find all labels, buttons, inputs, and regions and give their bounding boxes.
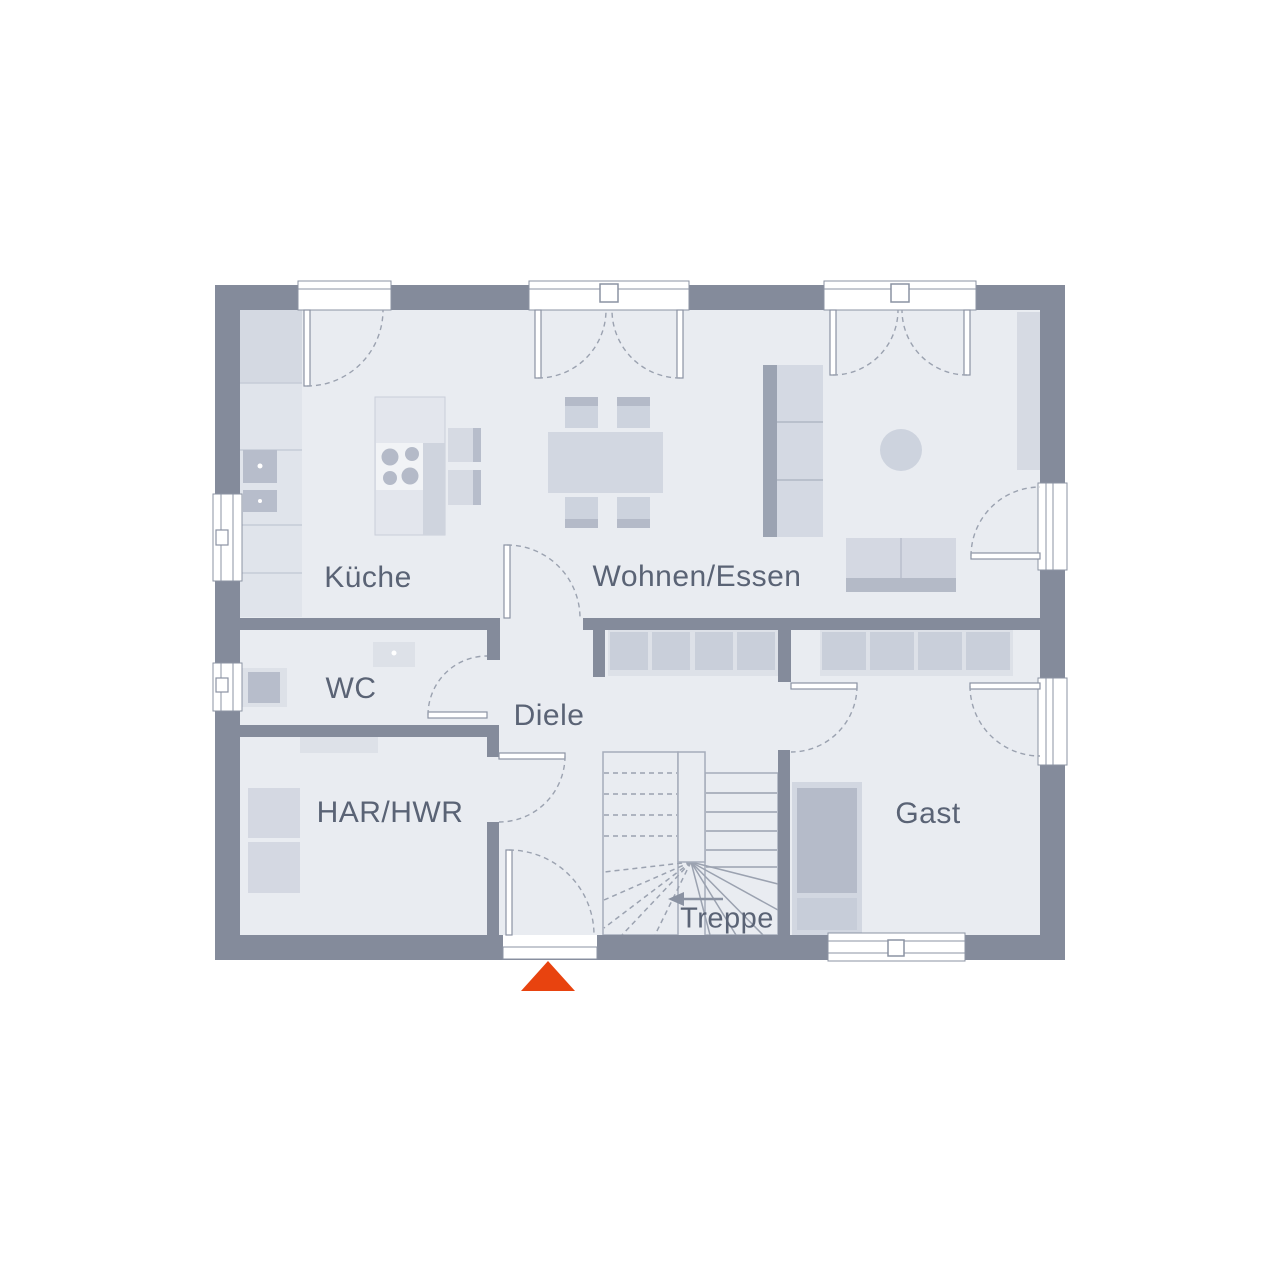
washing-machine — [248, 788, 300, 838]
door-leaf-living-left — [830, 310, 836, 375]
entrance-door-opening — [503, 935, 597, 948]
wc-toilet-seat — [248, 672, 280, 703]
wall-stair-guest — [778, 750, 790, 935]
room-label-gast: Gast — [895, 799, 960, 829]
door-leaf-entrance — [506, 850, 512, 935]
stair-spine — [678, 752, 705, 862]
shelf-unit-back — [763, 365, 777, 537]
door-leaf-guest-window — [970, 683, 1040, 689]
island-stool-back — [473, 428, 481, 462]
kitchen-appliance-knob — [258, 499, 262, 503]
door-leaf-dining-right — [677, 310, 683, 378]
kitchen-sink-drain — [258, 464, 263, 469]
entrance-door-sill — [503, 947, 597, 959]
dryer-machine — [248, 842, 300, 893]
shelf-unit — [777, 365, 823, 537]
room-label-wohnen-essen: Wohnen/Essen — [593, 562, 802, 592]
window-handle-post — [216, 678, 228, 692]
door-leaf-living-window — [971, 553, 1040, 559]
door-leaf-hall-kitchen — [504, 545, 510, 618]
wall-kitchen-wc — [240, 618, 500, 630]
guest-bed-mattress — [797, 788, 857, 893]
dining-table — [548, 432, 663, 493]
sofa-back — [846, 578, 956, 592]
wc-washbasin-drain — [392, 651, 397, 656]
guest-bed-pillow — [797, 898, 857, 930]
room-label-kueche: Küche — [324, 563, 412, 593]
wall-utility-right-lower — [487, 822, 499, 935]
window-mullion-post — [888, 940, 904, 956]
window-handle-post — [216, 530, 228, 545]
wall-stub-wc-entry — [487, 618, 500, 660]
entrance-direction-icon — [521, 961, 575, 991]
dining-chair-back — [617, 519, 650, 528]
door-leaf-living-right — [964, 310, 970, 375]
wall-exterior-left — [215, 285, 240, 960]
door-leaf-dining-left — [535, 310, 541, 378]
dining-chair-back — [617, 397, 650, 406]
window-kitchen-terrace-door — [298, 281, 391, 310]
room-label-wc: WC — [326, 674, 377, 704]
dining-chair-back — [565, 397, 598, 406]
room-label-treppe: Treppe — [680, 905, 774, 934]
wall-utility-right-upper — [487, 725, 499, 757]
room-label-har-hwr: HAR/HWR — [317, 798, 464, 828]
dining-chair-back — [565, 519, 598, 528]
wall-stub-hall-wardrobe — [593, 630, 605, 677]
wall-stub-guest-door — [778, 618, 791, 682]
window-mullion-post — [891, 284, 909, 302]
wall-living-hall — [583, 618, 1040, 630]
door-leaf-utility — [499, 753, 565, 759]
round-side-table — [880, 429, 922, 471]
floorplan-drawing — [0, 0, 1280, 1280]
floorplan-canvas: Küche Wohnen/Essen WC Diele HAR/HWR Gast… — [0, 0, 1280, 1280]
door-leaf-wc — [428, 712, 487, 718]
kitchen-counter-fridge — [240, 310, 302, 383]
island-stool-back — [473, 470, 481, 505]
wall-exterior-right — [1040, 285, 1065, 960]
window-mullion-post — [600, 284, 618, 302]
room-label-diele: Diele — [514, 701, 585, 731]
door-leaf-kitchen-terrace — [304, 310, 310, 386]
door-leaf-guest — [791, 683, 857, 689]
living-wall-cabinet — [1017, 312, 1040, 470]
wall-wc-utility — [240, 725, 499, 737]
kitchen-island-side — [423, 443, 445, 535]
utility-shelf — [300, 737, 378, 753]
